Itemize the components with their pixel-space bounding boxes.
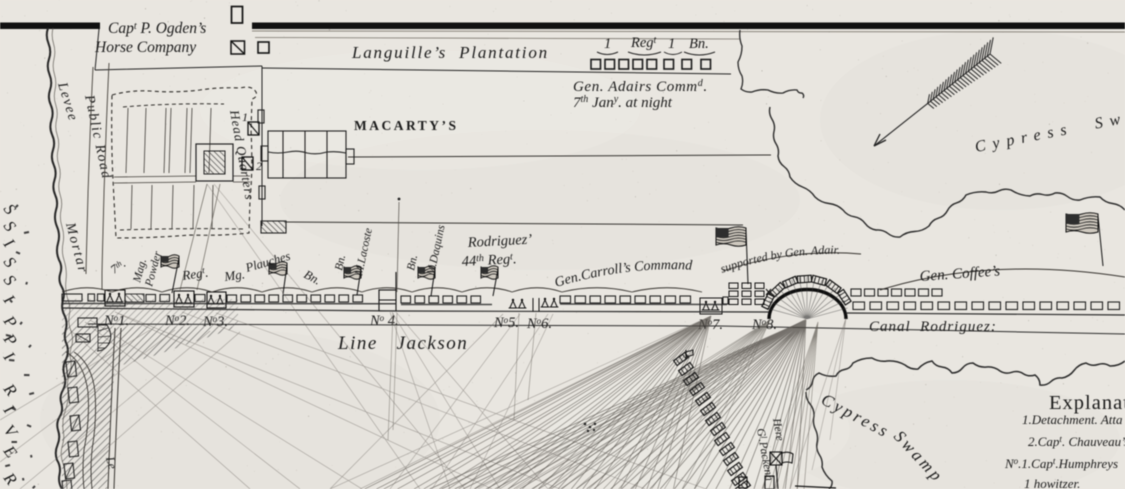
svg-text:Mg.: Mg. <box>222 266 245 284</box>
svg-text:44th Regt.: 44th Regt. <box>461 251 517 270</box>
svg-text:Languille’s Plantation: Languille’s Plantation <box>351 43 549 62</box>
svg-text:Gen. Adairs Commd.: Gen. Adairs Commd. <box>573 78 708 95</box>
svg-text:Capt P. Ogden’s: Capt P. Ogden’s <box>108 20 206 37</box>
svg-text:Horse Company: Horse Company <box>94 39 196 56</box>
svg-text:1: 1 <box>604 36 611 52</box>
svg-text:Explanat: Explanat <box>1049 392 1125 414</box>
svg-text:1 howitzer.: 1 howitzer. <box>1024 476 1080 489</box>
svg-text:Regt: Regt <box>630 35 657 51</box>
svg-text:Line Jackson: Line Jackson <box>337 333 468 354</box>
svg-text:2.Capt. Chauveau’s: 2.Capt. Chauveau’s <box>1028 434 1125 449</box>
svg-text:1: 1 <box>668 36 675 52</box>
svg-text:1.Detachment. Atta: 1.Detachment. Atta <box>1022 412 1123 427</box>
svg-text:MACARTY’S: MACARTY’S <box>354 118 459 133</box>
svg-text:Canal Rodriguez:: Canal Rodriguez: <box>869 319 997 335</box>
svg-text:1: 1 <box>242 110 248 124</box>
svg-text:Bn.: Bn. <box>689 36 709 52</box>
svg-text:7th Jany. at night: 7th Jany. at night <box>573 94 673 111</box>
svg-text:No.1.Capt.Humphreys: No.1.Capt.Humphreys <box>1004 456 1118 471</box>
